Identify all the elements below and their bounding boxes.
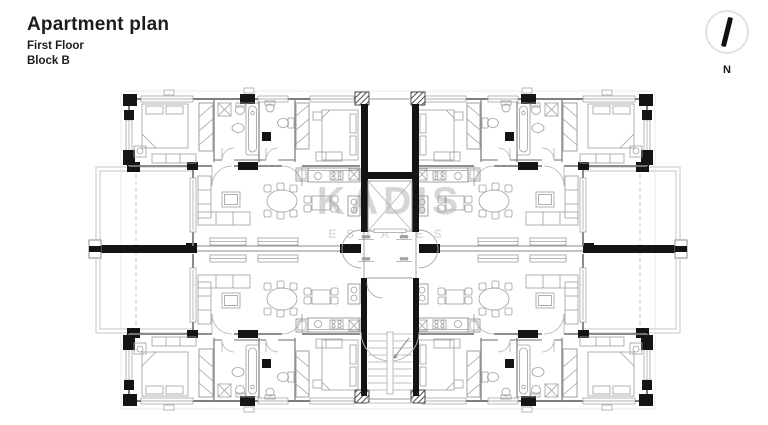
dimension-label: 1038 [362,235,370,239]
terrace-left [89,162,193,338]
terrace-right [583,162,687,338]
floor-plan-page: { "header": { "title": "Apartment plan",… [0,0,768,425]
north-arrow: N [702,8,752,76]
dimension-label: 1058 [400,235,408,239]
entry-landing [342,230,438,278]
dimension-labels: 1038 1058 1028 1048 [358,235,412,262]
block-label: Block B [27,54,169,69]
page-title: Apartment plan [27,14,169,36]
elevator [361,104,419,233]
staircase [361,278,419,403]
compass-icon [702,8,752,58]
party-wall [186,243,594,253]
dimension-label: 1028 [362,257,370,261]
floor-label: First Floor [27,39,169,54]
north-label: N [702,64,752,76]
dimension-label: 1048 [400,257,408,261]
north-needle-icon [721,17,733,47]
title-block: Apartment plan First Floor Block B [27,14,169,69]
